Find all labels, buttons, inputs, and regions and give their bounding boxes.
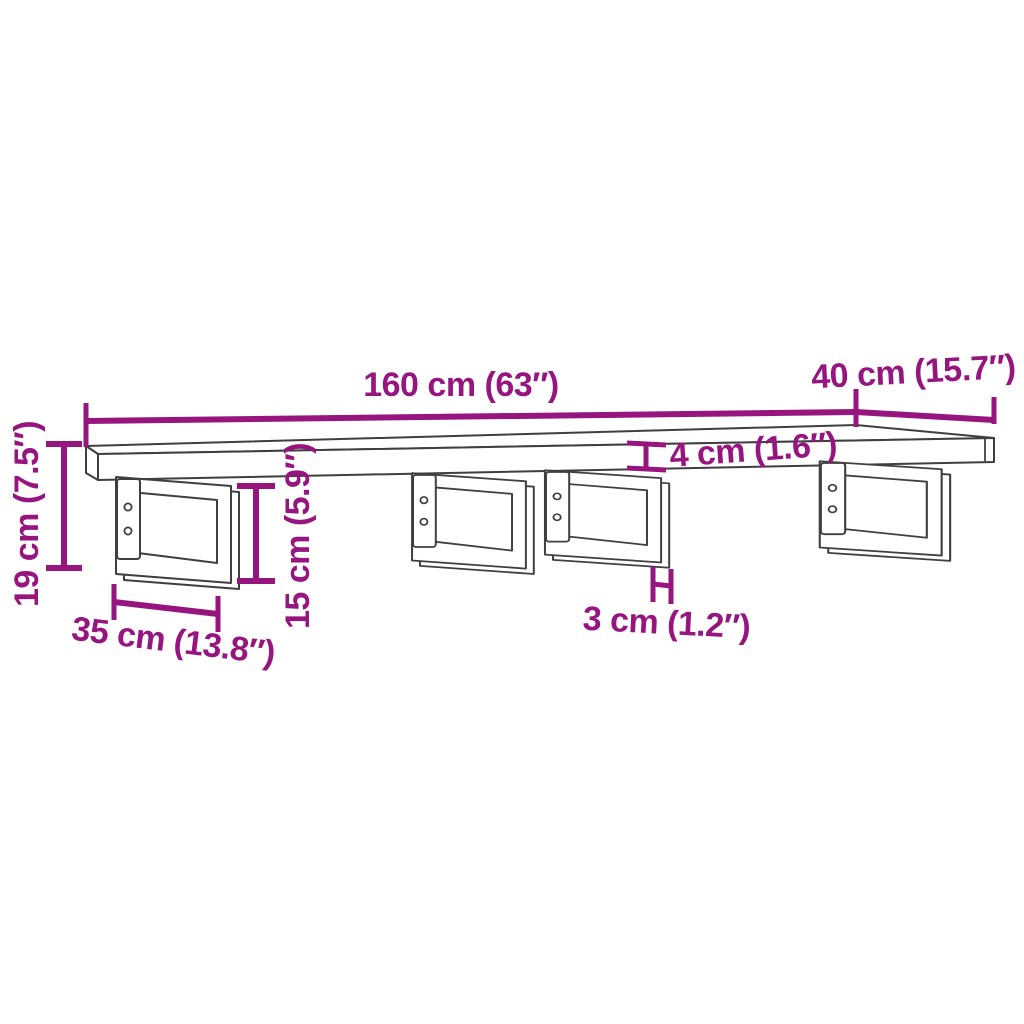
dim-bracket-depth: 35 cm (13.8″) [70,584,278,672]
dim-length-label: 160 cm (63″) [363,366,559,404]
bracket-3 [545,470,669,567]
dim-bar-width-crossbar [653,584,671,586]
dim-depth-label: 40 cm (15.7″) [810,348,1016,397]
bracket-1 [116,477,239,589]
dim-board-thickness-cap-bottom [627,468,666,470]
dim-overall-height-label: 19 cm (7.5″) [8,421,46,607]
shelf-dimension-diagram: 160 cm (63″) 40 cm (15.7″) 19 cm (7.5″) … [0,0,1024,1024]
dim-bracket-height-label: 15 cm (5.9″) [279,443,317,629]
dim-board-thickness-cap-top [627,443,666,445]
dim-overall-height: 19 cm (7.5″) [8,421,82,607]
dim-length-line [86,412,856,421]
dim-bracket-depth-line [114,602,218,614]
diagram-canvas: 160 cm (63″) 40 cm (15.7″) 19 cm (7.5″) … [0,0,1024,1024]
dim-bar-width-label: 3 cm (1.2″) [582,600,751,647]
dim-bracket-depth-label: 35 cm (13.8″) [70,610,278,673]
bracket-4 [820,461,950,561]
bracket-2 [412,473,534,574]
dim-depth-line [856,412,994,420]
dim-bar-width: 3 cm (1.2″) [582,567,751,646]
